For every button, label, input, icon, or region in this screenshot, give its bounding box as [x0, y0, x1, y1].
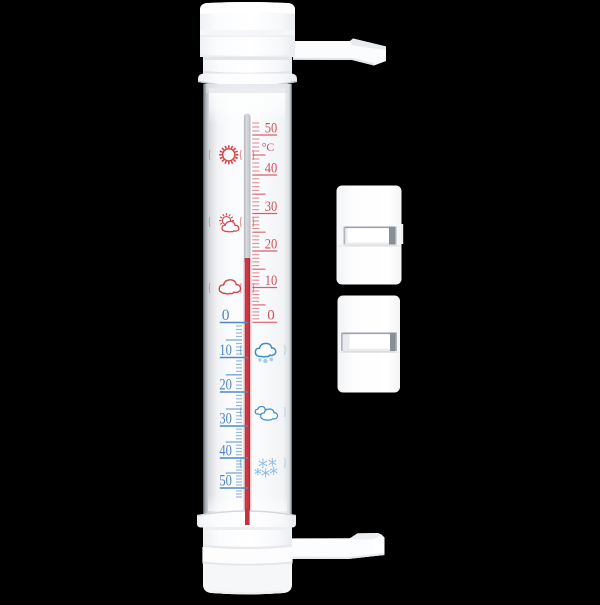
svg-text:30: 30 [265, 199, 278, 215]
svg-text:30: 30 [219, 410, 232, 427]
svg-text:°C: °C [262, 140, 275, 154]
svg-text:50: 50 [219, 472, 232, 489]
svg-text:40: 40 [265, 160, 278, 176]
svg-text:50: 50 [265, 120, 278, 136]
svg-text:40: 40 [219, 442, 232, 459]
svg-text:0: 0 [267, 308, 275, 324]
svg-text:10: 10 [219, 342, 232, 359]
svg-text:20: 20 [219, 376, 232, 393]
svg-text:20: 20 [265, 236, 278, 252]
svg-text:10: 10 [265, 273, 278, 289]
svg-text:0: 0 [222, 307, 230, 324]
